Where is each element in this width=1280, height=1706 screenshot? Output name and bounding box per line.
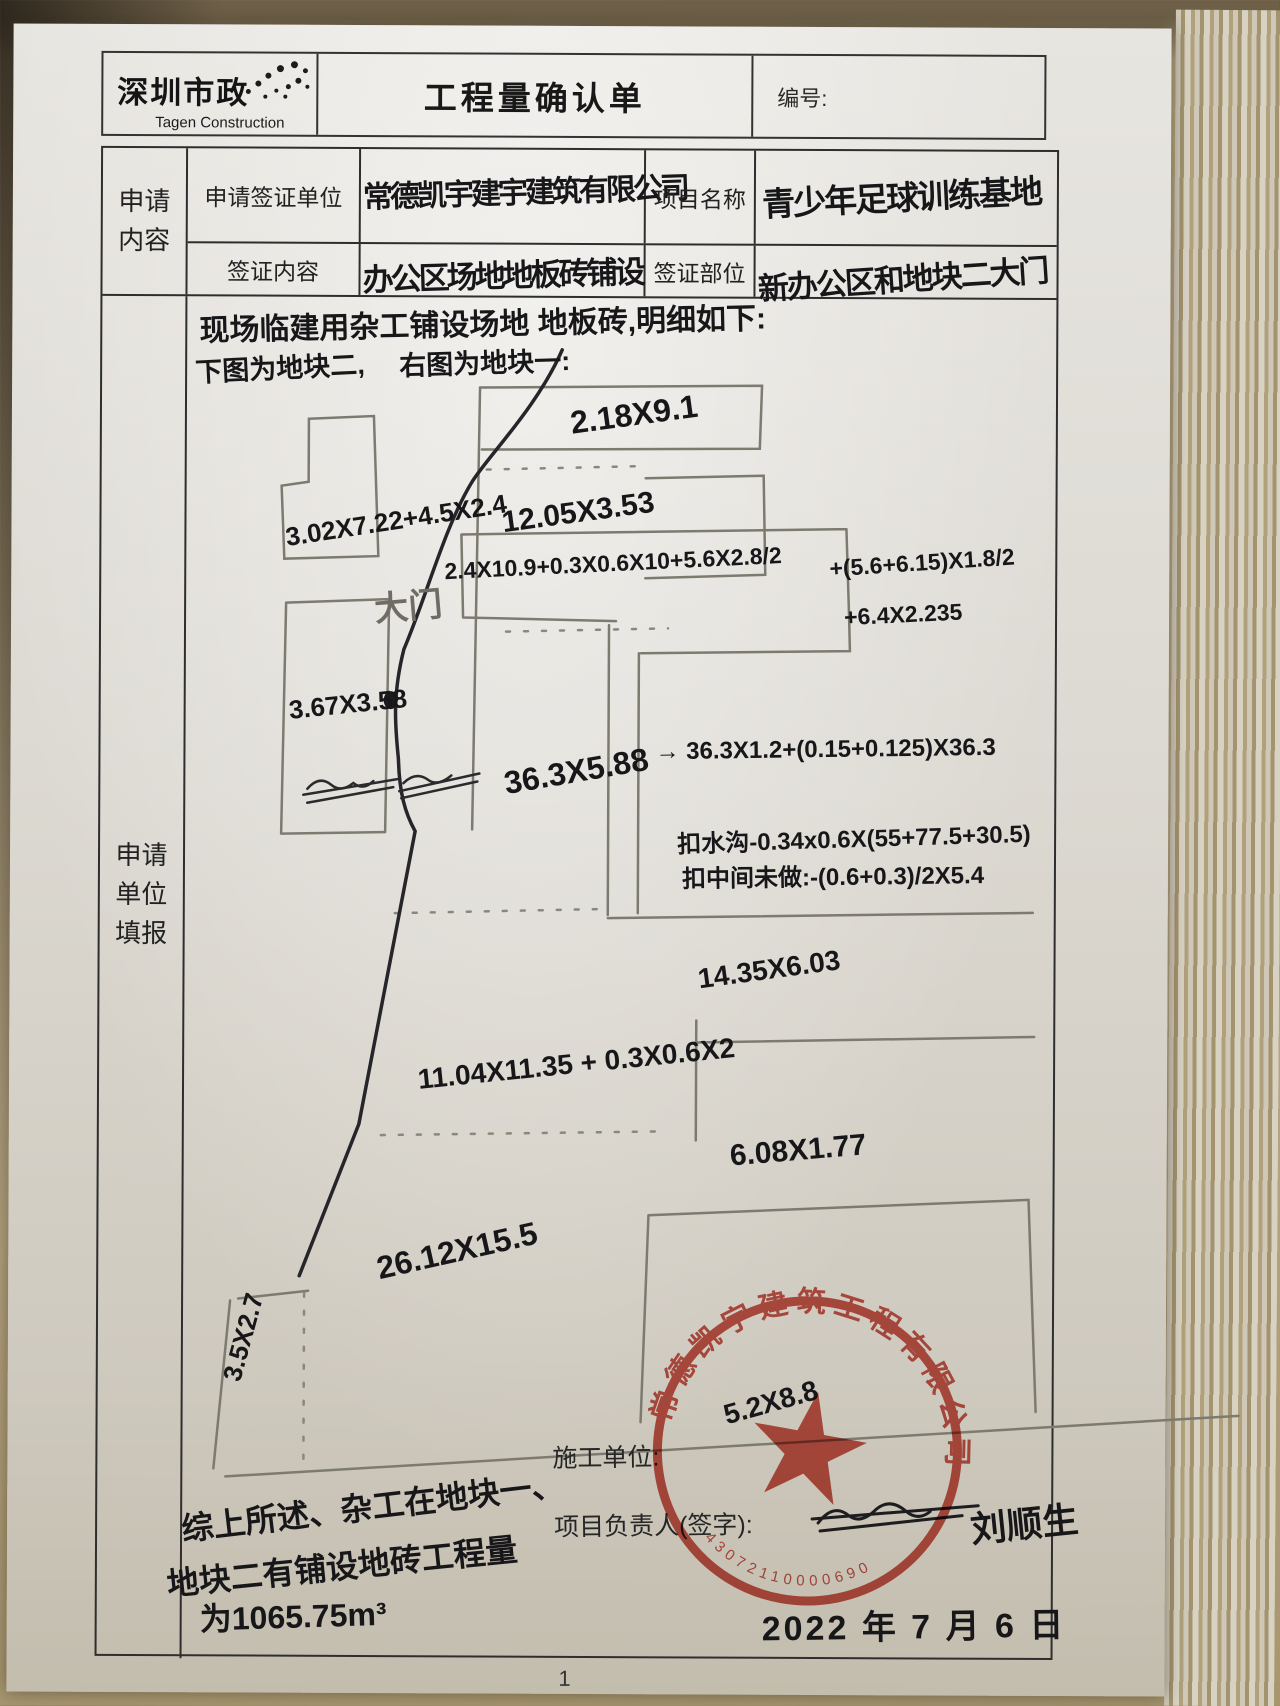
annotation-gate-label: 大门 [372, 576, 444, 630]
annotation-deduct-middle: 扣中间未做:-(0.6+0.3)/2X5.4 [682, 855, 985, 894]
annotation-formula-main: 2.4X10.9+0.3X0.6X10+5.6X2.8/2 [444, 542, 783, 585]
annotation-dim-second-bar: 12.05X3.53 [500, 486, 657, 540]
signature-name: 刘顺生 [968, 1491, 1081, 1554]
section-label-application: 申请内容 [115, 182, 173, 260]
table-row: 申请签证单位 常德凯宇建宇建筑有限公司 项目名称 青少年足球训练基地 [188, 148, 1057, 247]
visa-content-label: 签证内容 [187, 243, 360, 295]
company-seal-stamp: 常德凯宇建筑工程有限公司 43072110000690 [610, 1253, 1005, 1648]
logo-english-text: Tagen Construction [155, 114, 316, 132]
annotation-dim-block2-lshape: 3.02X7.22+4.5X2.4 [283, 488, 508, 553]
project-name-value: 青少年足球训练基地 [756, 151, 1057, 245]
annotation-dim-strip: 36.3X5.88 [501, 741, 651, 802]
annotation-formula-add1: +(5.6+6.15)X1.8/2 [829, 543, 1016, 582]
seal-star-icon [743, 1382, 875, 1509]
annotation-dim-small-plot: 3.5X2.7 [217, 1290, 270, 1385]
caption-block2: 下图为地块二, [194, 343, 365, 390]
visa-location-label: 签证部位 [645, 245, 755, 296]
doc-number-label: 编号: [777, 80, 827, 112]
sketch-area: 现场临建用杂工铺设场地 地板砖,明细如下: 下图为地块二, 右图为地块一: 2.… [182, 296, 1057, 1662]
annotation-dim-top-bar: 2.18X9.1 [568, 388, 700, 442]
annotation-formula-add2: +6.4X2.235 [843, 599, 962, 632]
applicant-unit-label: 申请签证单位 [188, 148, 361, 242]
visa-content-value: 办公区场地地板砖铺设 [360, 244, 645, 296]
form-title: 工程量确认单 [424, 71, 646, 120]
annotation-dim-big-area: 26.12X15.5 [373, 1215, 541, 1287]
scanned-form-paper: 深圳市政 Tagen Construction 工程量确认单 编号: 申请内容 [6, 23, 1171, 1696]
photo-page-edges [1164, 10, 1280, 1706]
page-number: 1 [558, 1666, 570, 1692]
project-name-label: 项目名称 [646, 150, 756, 243]
annotation-dim-mid-bar: 14.35X6.03 [696, 944, 842, 995]
annotation-formula-lower: 11.04X11.35 + 0.3X0.6X2 [416, 1032, 736, 1096]
annotation-dim-block2-rect: 3.67X3.58 [287, 683, 408, 726]
annotation-dim-lower-bar: 6.08X1.77 [729, 1128, 868, 1173]
annotation-formula-strip: → 36.3X1.2+(0.15+0.125)X36.3 [655, 734, 996, 766]
section-label-filled-by-applicant: 申请单位填报 [109, 836, 171, 1658]
table-row: 签证内容 办公区场地地板砖铺设 签证部位 新办公区和地块二大门 [187, 243, 1056, 298]
logo-dots-icon [238, 55, 314, 105]
visa-location-value: 新办公区和地块二大门 [755, 246, 1056, 298]
summary-line-3: 为1065.75m³ [199, 1589, 387, 1641]
applicant-unit-value: 常德凯宇建宇建筑有限公司 [361, 149, 646, 243]
form-header: 深圳市政 Tagen Construction 工程量确认单 编号: [101, 51, 1046, 140]
company-logo: 深圳市政 Tagen Construction [103, 53, 318, 135]
annotation-deduct-gutter: 扣水沟-0.34x0.6X(55+77.5+30.5) [677, 814, 1031, 860]
caption-block1: 右图为地块一: [399, 339, 571, 383]
form-table: 申请内容 申请签证单位 常德凯宇建宇建筑有限公司 项目名称 青少年足球训练基地 … [95, 146, 1060, 1660]
